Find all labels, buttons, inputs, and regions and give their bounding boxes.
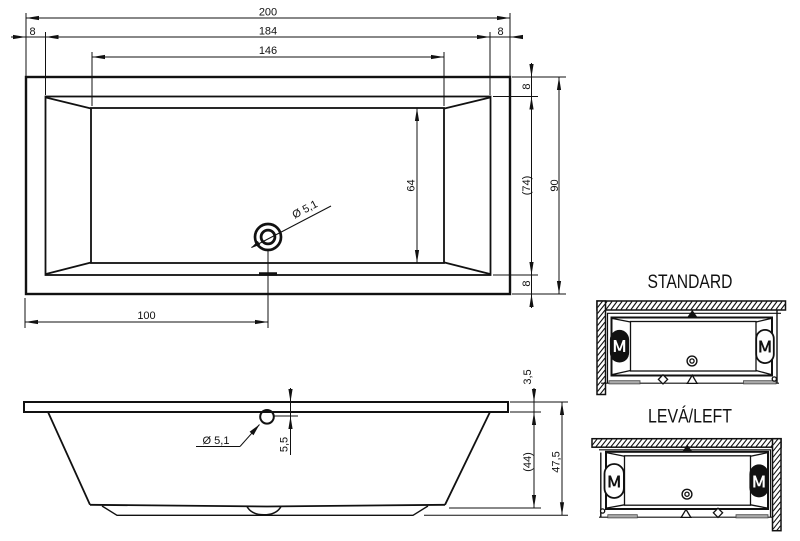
svg-text:90: 90 [549, 179, 561, 191]
svg-text:(44): (44) [522, 452, 534, 472]
svg-text:8: 8 [521, 83, 533, 89]
svg-text:47,5: 47,5 [551, 451, 563, 472]
svg-text:64: 64 [406, 179, 418, 191]
svg-text:Ø 5,1: Ø 5,1 [203, 435, 230, 447]
svg-text:3,5: 3,5 [522, 369, 534, 384]
svg-text:8: 8 [29, 26, 35, 38]
svg-text:100: 100 [137, 310, 155, 322]
svg-text:5,5: 5,5 [279, 437, 291, 452]
svg-text:200: 200 [259, 7, 277, 19]
svg-text:STANDARD: STANDARD [648, 271, 733, 293]
svg-text:(74): (74) [521, 176, 533, 196]
svg-text:8: 8 [497, 26, 503, 38]
svg-text:LEVÁ/LEFT: LEVÁ/LEFT [648, 405, 732, 428]
svg-text:184: 184 [259, 26, 277, 38]
svg-text:146: 146 [259, 45, 277, 57]
svg-text:8: 8 [521, 280, 533, 286]
